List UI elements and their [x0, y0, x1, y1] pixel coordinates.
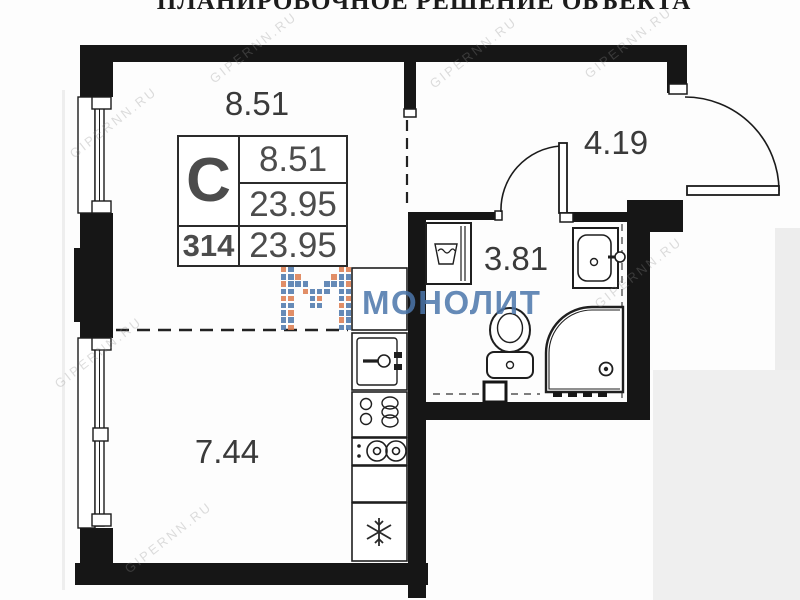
- bathroom-door-leaf: [559, 143, 567, 213]
- brand-watermark: МОНОЛИТ: [281, 267, 541, 337]
- room-label-living: 8.51: [225, 85, 289, 123]
- spec-total-area: 23.95: [240, 184, 346, 227]
- spec-type: С: [179, 137, 240, 227]
- bathroom-door: [501, 143, 573, 222]
- spec-unit-number: 314: [179, 227, 240, 265]
- brand-logo-mosaic: [281, 267, 355, 333]
- vent-shaft: [484, 382, 506, 402]
- kitchen-coil-box: [352, 392, 407, 437]
- entrance-door-leaf: [687, 186, 779, 195]
- kitchen-sink-icon: [357, 338, 402, 385]
- spec-total-area-repeat: 23.95: [240, 227, 346, 265]
- spec-living-area: 8.51: [240, 137, 346, 184]
- floorplan-page: ПЛАНИРОВОЧНОЕ РЕШЕНИЕ ОБЪЕКТА: [0, 0, 800, 600]
- brand-watermark-text: МОНОЛИТ: [362, 284, 541, 322]
- room-label-hallway: 4.19: [584, 124, 648, 162]
- entrance-door: [685, 97, 779, 195]
- shower-icon: [546, 307, 623, 397]
- spec-table: С 8.51 23.95 314 23.95: [177, 135, 348, 267]
- kitchen-cabinet-2: [352, 466, 407, 502]
- room-label-sleeping: 7.44: [195, 433, 259, 471]
